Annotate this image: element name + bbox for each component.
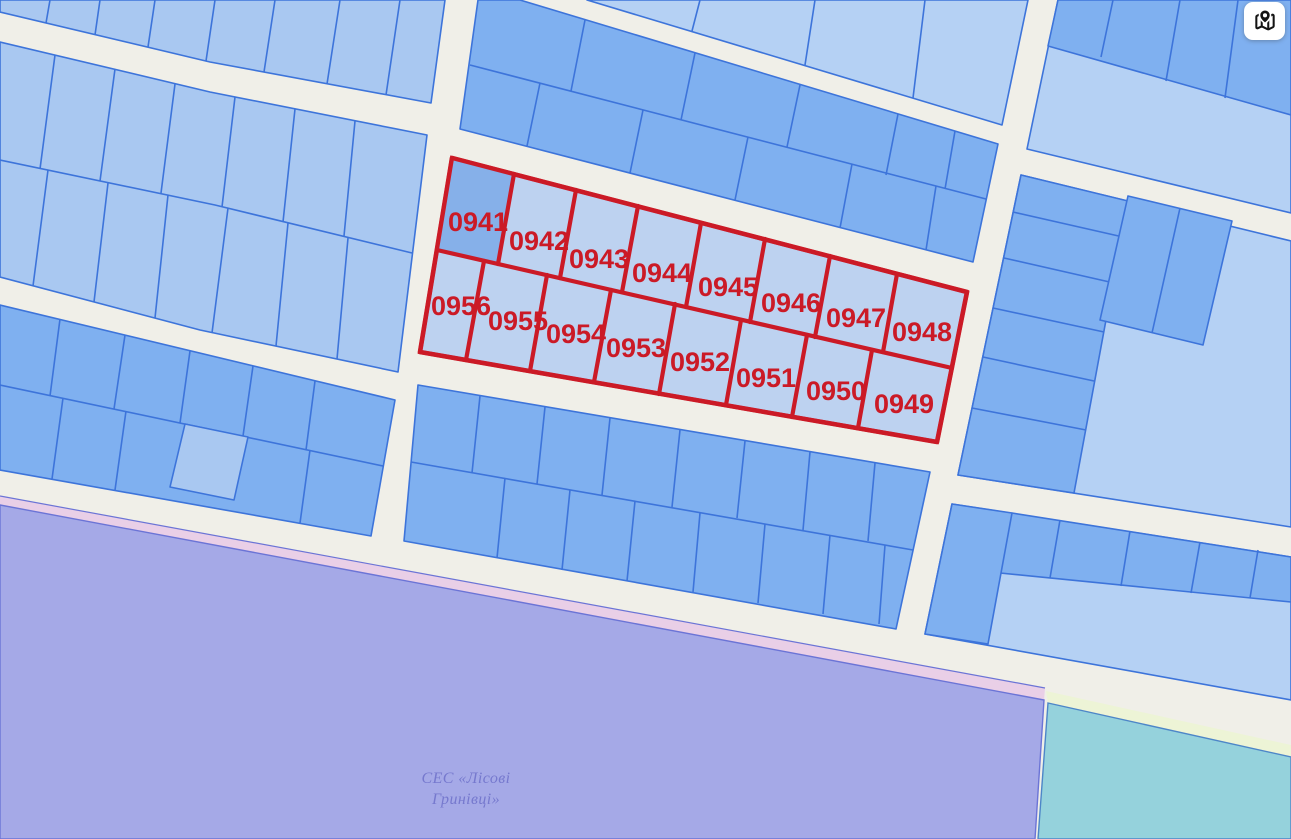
parcel-number: 0944	[632, 258, 692, 288]
parcel-number: 0947	[826, 303, 886, 333]
cadastral-map-viewport[interactable]: СЕС «Лісові Гринівці» 0941 0942 0943 094…	[0, 0, 1291, 839]
parcel-number: 0945	[698, 272, 758, 302]
parcel-number: 0946	[761, 288, 821, 318]
parcel-number: 0952	[670, 347, 730, 377]
parcel-number: 0956	[431, 291, 491, 321]
parcel-number: 0953	[606, 333, 666, 363]
parcel-number: 0948	[892, 317, 952, 347]
map-pinned-icon	[1252, 8, 1278, 34]
parcel-number: 0954	[546, 319, 606, 349]
map-canvas[interactable]: СЕС «Лісові Гринівці» 0941 0942 0943 094…	[0, 0, 1291, 839]
parcel-number: 0942	[509, 226, 569, 256]
parcel-number: 0955	[488, 306, 548, 336]
parcel-number: 0949	[874, 389, 934, 419]
zone-label-line2: Гринівці»	[431, 791, 500, 808]
parcel-number: 0950	[806, 376, 866, 406]
parcel-number: 0951	[736, 363, 796, 393]
zone-label-line1: СЕС «Лісові	[422, 770, 511, 787]
map-layers-button[interactable]	[1244, 2, 1285, 40]
parcel-number: 0943	[569, 244, 629, 274]
parcel-number: 0941	[448, 207, 508, 237]
